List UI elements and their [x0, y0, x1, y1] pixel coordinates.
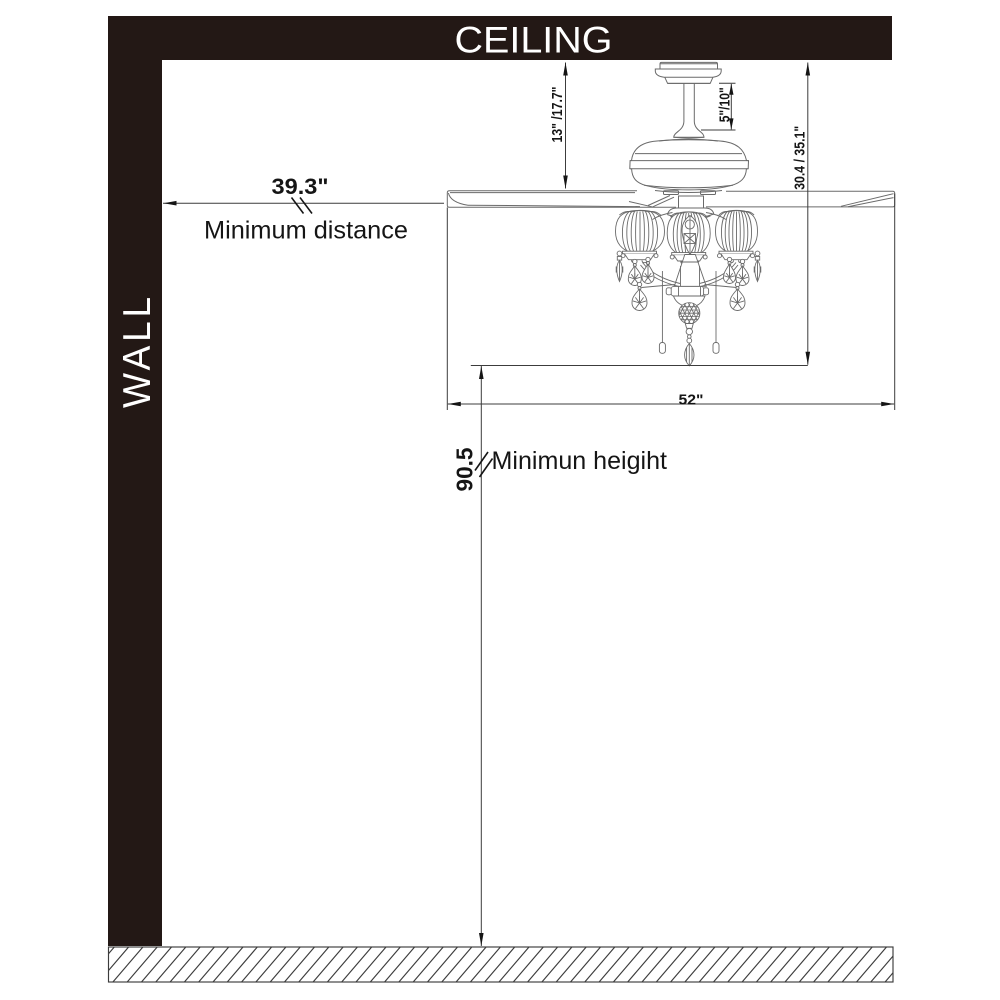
- svg-text:5"/10": 5"/10": [717, 87, 733, 122]
- svg-text:Minimun heigiht: Minimun heigiht: [492, 447, 668, 475]
- svg-text:30.4 / 35.1": 30.4 / 35.1": [792, 126, 808, 190]
- svg-text:52": 52": [679, 393, 704, 409]
- svg-text:CEILING: CEILING: [455, 19, 613, 60]
- svg-text:Minimum distance: Minimum distance: [204, 217, 408, 245]
- svg-text:WALL: WALL: [116, 293, 159, 408]
- svg-text:39.3": 39.3": [272, 174, 329, 199]
- svg-text:90.5: 90.5: [451, 448, 477, 492]
- svg-text:13" /17.7": 13" /17.7": [550, 87, 566, 143]
